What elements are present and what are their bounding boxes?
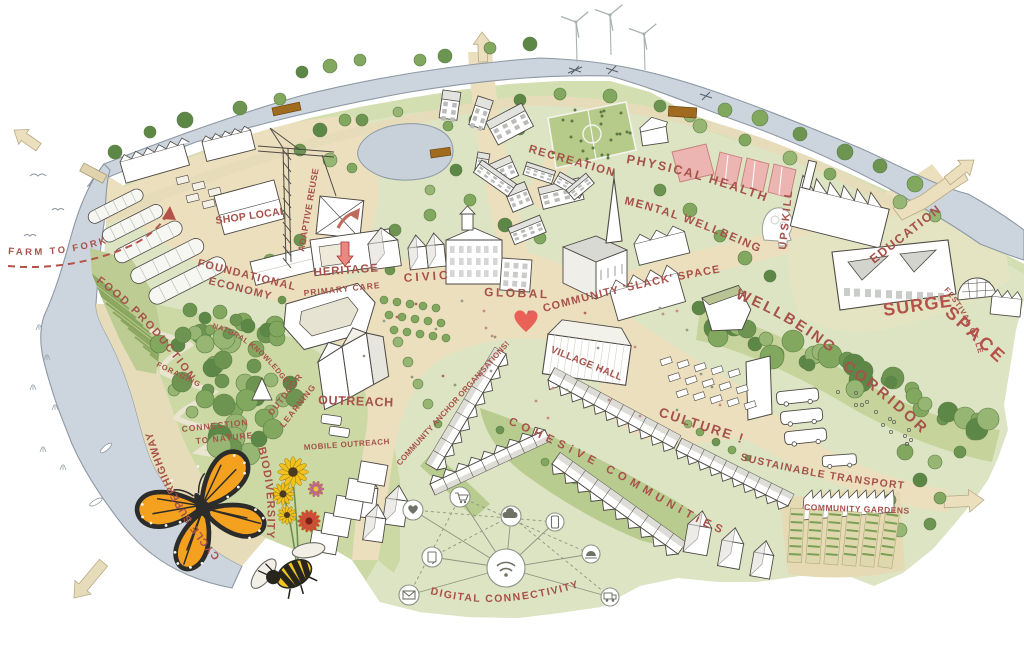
svg-text:OUTREACH: OUTREACH (318, 393, 394, 410)
svg-text:GLOBAL: GLOBAL (484, 285, 550, 301)
